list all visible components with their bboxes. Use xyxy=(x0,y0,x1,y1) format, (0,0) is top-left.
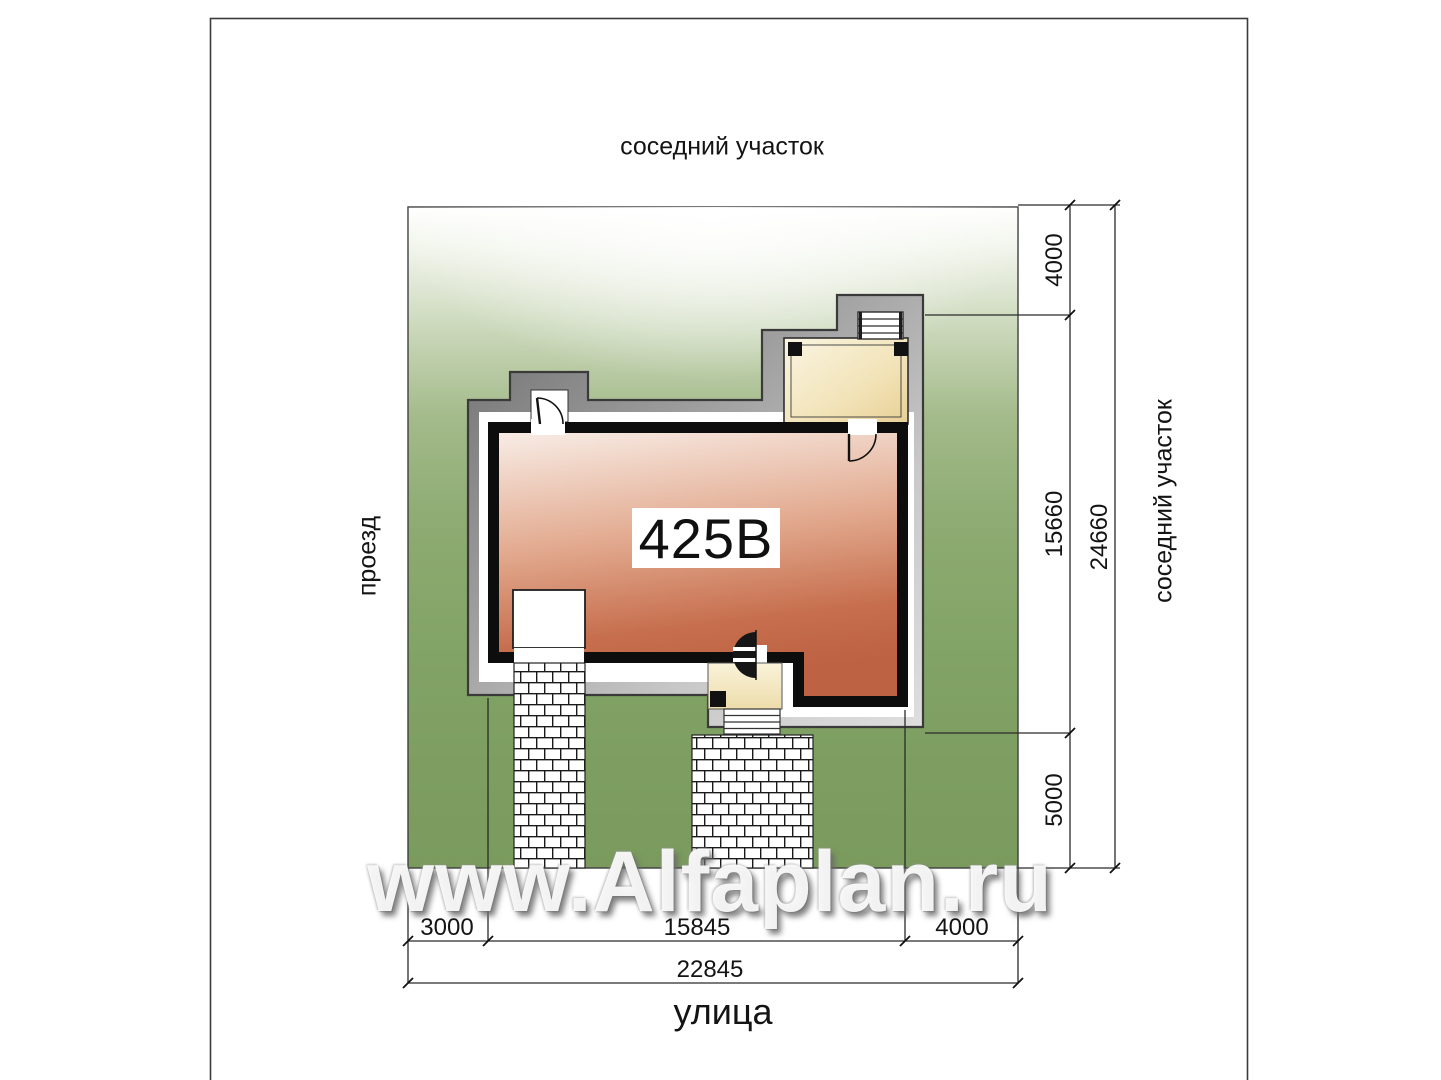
terrace-column xyxy=(894,342,908,356)
label-neighbor-right: соседний участок xyxy=(1150,399,1179,603)
dim-setback-bottom: 5000 xyxy=(1041,773,1069,826)
dim-plot-width: 22845 xyxy=(677,956,744,984)
terrace-column xyxy=(788,342,802,356)
house-number: 425В xyxy=(632,508,780,568)
stairs-bottom xyxy=(724,709,780,734)
dim-setback-left: 3000 xyxy=(420,914,473,942)
dim-setback-top: 4000 xyxy=(1041,233,1069,286)
door-opening-terrace xyxy=(848,419,877,435)
porch-column xyxy=(710,691,726,707)
dim-house-depth: 15660 xyxy=(1041,491,1069,558)
dim-plot-depth: 24660 xyxy=(1086,504,1114,571)
dim-house-width: 15845 xyxy=(664,914,731,942)
terrace-bottom-left xyxy=(513,590,585,663)
brick-path-left xyxy=(514,663,585,868)
brick-path-center xyxy=(692,735,813,868)
site-plan-page: www.Alfaplan.ru 425В соседний участок со… xyxy=(0,0,1441,1080)
door-opening-top-left xyxy=(531,419,565,435)
terrace xyxy=(784,338,908,424)
label-driveway: проезд xyxy=(354,516,383,596)
label-street: улица xyxy=(674,991,773,1033)
label-neighbor-top: соседний участок xyxy=(620,133,824,162)
dim-setback-right: 4000 xyxy=(935,914,988,942)
stairs-top-right xyxy=(858,312,903,339)
